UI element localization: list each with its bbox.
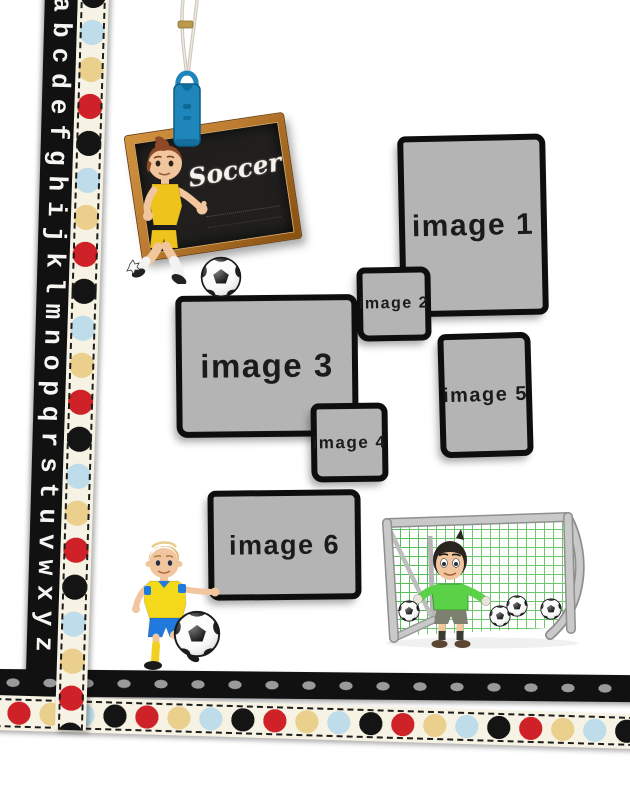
brass-clamp <box>178 21 193 28</box>
goal-net <box>392 519 569 636</box>
hanging-cord-with-clip-icon <box>150 0 220 152</box>
scrapbook-page: abcdefghijklmnopqrstuvwxyz Soccer <box>0 0 630 810</box>
image-placeholder-4[interactable]: image 4 <box>310 402 388 482</box>
placeholder-label: image 3 <box>200 346 334 385</box>
placeholder-label: image 4 <box>312 432 386 453</box>
boy-soccer-player-icon <box>132 531 228 671</box>
placeholder-label: image 5 <box>443 382 529 407</box>
placeholder-label: image 1 <box>412 207 535 244</box>
soccer-ball-icon <box>200 256 242 298</box>
image-placeholder-2[interactable]: image 2 <box>356 266 431 341</box>
goalkeeper-with-goal-icon <box>382 502 594 650</box>
horizontal-polka-dot-ribbon <box>0 695 630 749</box>
placeholder-label: image 6 <box>229 529 340 561</box>
image-placeholder-5[interactable]: image 5 <box>437 332 533 459</box>
placeholder-label: image 2 <box>359 294 429 313</box>
image-placeholder-6[interactable]: image 6 <box>207 489 361 601</box>
